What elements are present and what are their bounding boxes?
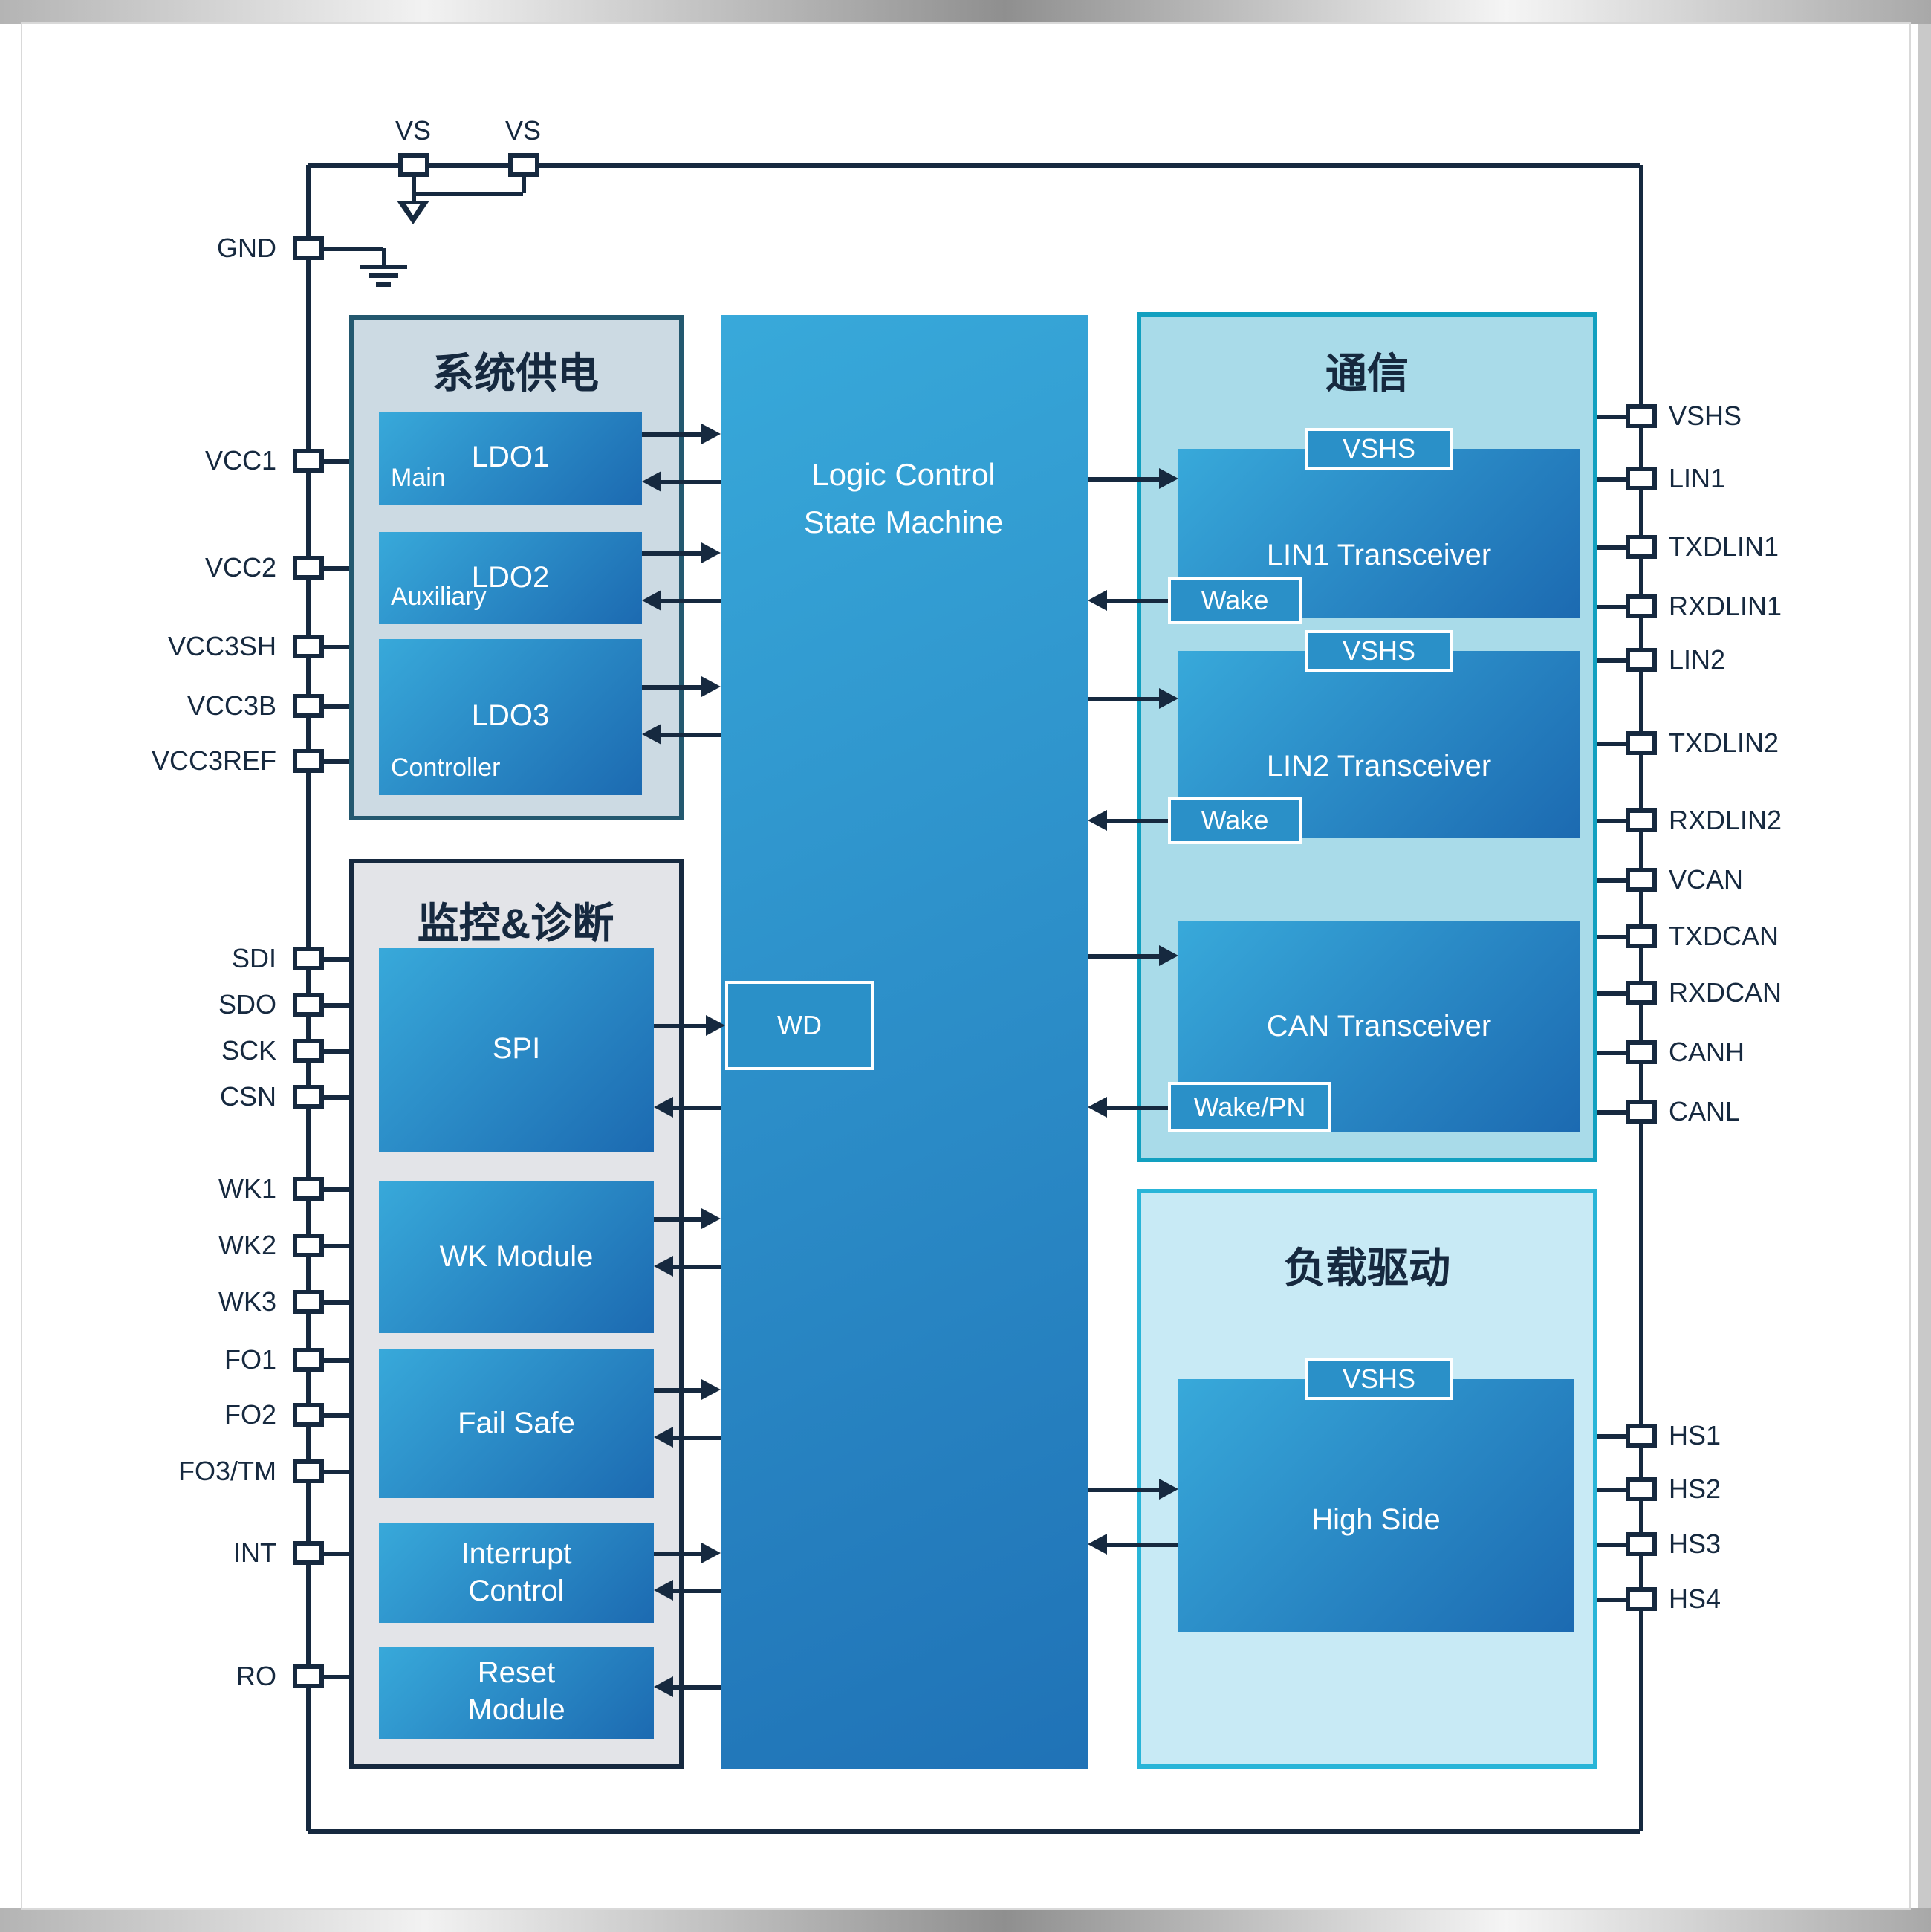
module-spi: SPI — [379, 948, 654, 1152]
arrow-interrupt-out-head — [701, 1543, 721, 1563]
pin-fo3-tm — [292, 1459, 323, 1483]
arrow-ldo2-in-head — [642, 590, 661, 611]
pin-label-gnd: GND — [217, 235, 276, 262]
module-high-side: High Side — [1178, 1379, 1574, 1632]
pin-rxdlin1 — [1625, 594, 1656, 618]
arrow-spi-in-head — [654, 1097, 673, 1118]
arrow-interrupt-in-head — [654, 1580, 673, 1601]
pin-label-canh: CANH — [1669, 1039, 1745, 1066]
pin-wk1 — [292, 1177, 323, 1201]
pin-vcc1 — [292, 449, 323, 473]
pin-vs-1 — [397, 153, 429, 177]
pin-canh — [1625, 1040, 1656, 1064]
badge-lin1-wake: Wake — [1168, 577, 1302, 624]
arrow-reset-in-shaft — [670, 1685, 721, 1689]
pin-label-wk2: WK2 — [218, 1232, 276, 1259]
pin-label-lin1: LIN1 — [1669, 465, 1725, 492]
pin-label-fo1: FO1 — [224, 1346, 276, 1373]
pin-hs3 — [1625, 1532, 1656, 1556]
arrow-can-wake-out-shaft — [1104, 1105, 1168, 1109]
pin-label-vshs: VSHS — [1669, 403, 1742, 429]
pin-label-wk3: WK3 — [218, 1288, 276, 1315]
badge-can-wake-pn: Wake/PN — [1168, 1082, 1331, 1132]
pin-label-fo3-tm: FO3/TM — [178, 1458, 276, 1485]
pin-ro — [292, 1664, 323, 1688]
arrow-spi-in-shaft — [670, 1105, 721, 1109]
arrow-lin2-wake-out-head — [1088, 810, 1107, 831]
pin-wk3 — [292, 1290, 323, 1314]
module-interrupt: Interrupt Control — [379, 1523, 654, 1623]
pin-label-vcc1: VCC1 — [205, 447, 276, 474]
pin-hs2 — [1625, 1477, 1656, 1501]
arrow-ldo2-out-head — [701, 542, 721, 563]
pin-label-vcc3sh: VCC3SH — [168, 633, 276, 660]
gnd-wire-v — [381, 248, 386, 265]
section-title-load: 负载驱动 — [1284, 1236, 1450, 1296]
arrow-lin1-in-shaft — [1088, 476, 1162, 481]
pin-label-vcc3b: VCC3B — [187, 693, 276, 719]
pin-label-sdi: SDI — [232, 945, 276, 972]
pin-wk2 — [292, 1234, 323, 1257]
pin-hs4 — [1625, 1587, 1656, 1611]
arrow-lin2-in-shaft — [1088, 696, 1162, 701]
arrow-ldo2-in-shaft — [658, 598, 721, 603]
pin-rxdcan — [1625, 981, 1656, 1005]
arrow-wk-in-head — [654, 1256, 673, 1277]
pin-label-sdo: SDO — [218, 991, 276, 1018]
vs-wire-down-1 — [411, 177, 415, 204]
pin-canl — [1625, 1100, 1656, 1124]
vs-wire-join — [413, 191, 523, 195]
arrow-lin1-in-head — [1159, 468, 1178, 489]
chip-block-diagram: VSVSGNDVCC1VCC2VCC3SHVCC3BVCC3REFSDISDOS… — [0, 0, 1931, 1932]
pin-vshs — [1625, 404, 1656, 428]
pin-label-vcc3ref: VCC3REF — [152, 748, 276, 774]
pin-fo1 — [292, 1348, 323, 1372]
pin-label-vs-2: VS — [505, 117, 541, 144]
pin-label-rxdcan: RXDCAN — [1669, 979, 1782, 1006]
section-title-power: 系统供电 — [432, 342, 599, 401]
pin-label-txdlin1: TXDLIN1 — [1669, 534, 1779, 560]
pin-label-int: INT — [233, 1540, 276, 1566]
pin-vcc3ref — [292, 749, 323, 773]
pin-rxdlin2 — [1625, 808, 1656, 832]
gnd-bar-1 — [360, 264, 407, 268]
arrow-ldo1-out-shaft — [642, 432, 704, 436]
arrow-lin1-wake-out-shaft — [1104, 598, 1168, 603]
arrow-interrupt-out-shaft — [654, 1551, 704, 1555]
pin-label-wk1: WK1 — [218, 1176, 276, 1202]
badge-highside-vshs: VSHS — [1305, 1358, 1453, 1400]
badge-lin2-wake: Wake — [1168, 797, 1302, 844]
pin-label-ro: RO — [236, 1663, 276, 1690]
pin-label-canl: CANL — [1669, 1098, 1740, 1125]
module-ldo1-role: Main — [391, 464, 446, 493]
pin-vs-2 — [507, 153, 539, 177]
module-reset: Reset Module — [379, 1647, 654, 1739]
arrow-reset-in-head — [654, 1676, 673, 1697]
arrow-ldo3-in-shaft — [658, 732, 721, 736]
arrow-highside-out-head — [1088, 1534, 1107, 1555]
badge-lin2-vshs: VSHS — [1305, 630, 1453, 672]
arrow-wk-out-shaft — [654, 1216, 704, 1221]
arrow-highside-in-head — [1159, 1479, 1178, 1500]
module-logic-control-label: Logic Control State Machine — [804, 453, 1004, 546]
arrow-interrupt-in-shaft — [670, 1588, 721, 1592]
pin-label-csn: CSN — [220, 1083, 276, 1110]
arrow-highside-in-shaft — [1088, 1487, 1162, 1491]
pin-csn — [292, 1085, 323, 1109]
pin-label-vcan: VCAN — [1669, 866, 1743, 893]
pin-label-hs2: HS2 — [1669, 1476, 1721, 1503]
arrow-failsafe-out-head — [701, 1379, 721, 1400]
pin-txdcan — [1625, 924, 1656, 948]
arrow-lin1-wake-out-head — [1088, 590, 1107, 611]
gnd-wire-h — [322, 246, 383, 250]
arrow-failsafe-in-shaft — [670, 1435, 721, 1439]
module-ldo3-role: Controller — [391, 753, 500, 783]
module-failsafe: Fail Safe — [379, 1349, 654, 1498]
pin-label-hs4: HS4 — [1669, 1586, 1721, 1612]
module-ldo2-role: Auxiliary — [391, 583, 487, 612]
gnd-bar-3 — [376, 282, 391, 286]
arrow-ldo3-out-head — [701, 676, 721, 697]
pin-vcc3sh — [292, 635, 323, 658]
pin-label-vs-1: VS — [395, 117, 431, 144]
section-title-communication: 通信 — [1325, 342, 1409, 401]
pin-label-hs1: HS1 — [1669, 1422, 1721, 1449]
pin-label-txdcan: TXDCAN — [1669, 923, 1779, 950]
pin-vcc3b — [292, 694, 323, 718]
pin-txdlin1 — [1625, 535, 1656, 559]
arrow-ldo2-out-shaft — [642, 551, 704, 555]
section-title-monitor: 监控&诊断 — [418, 892, 614, 951]
chip-border-bottom — [308, 1829, 1640, 1833]
window-chrome-top — [0, 0, 1931, 24]
arrow-can-in-head — [1159, 945, 1178, 966]
pin-gnd — [292, 236, 323, 260]
module-wk: WK Module — [379, 1181, 654, 1333]
pin-lin2 — [1625, 648, 1656, 672]
pin-sck — [292, 1039, 323, 1063]
arrow-spi-to-wd-head — [706, 1015, 725, 1036]
pin-label-rxdlin2: RXDLIN2 — [1669, 807, 1782, 834]
arrow-failsafe-in-head — [654, 1427, 673, 1448]
supply-arrow-icon-inner — [406, 204, 421, 215]
pin-sdo — [292, 993, 323, 1017]
arrow-ldo1-in-shaft — [658, 479, 721, 484]
window-edge-right — [1918, 24, 1931, 1908]
gnd-bar-2 — [369, 273, 398, 277]
badge-lin1-vshs: VSHS — [1305, 428, 1453, 470]
arrow-ldo3-in-head — [642, 724, 661, 745]
arrow-spi-to-wd-shaft — [654, 1023, 709, 1028]
arrow-highside-out-shaft — [1104, 1542, 1178, 1546]
arrow-wk-in-shaft — [670, 1264, 721, 1268]
pin-vcan — [1625, 868, 1656, 892]
arrow-can-wake-out-head — [1088, 1097, 1107, 1118]
arrow-failsafe-out-shaft — [654, 1387, 704, 1392]
pin-label-txdlin2: TXDLIN2 — [1669, 730, 1779, 756]
pin-label-hs3: HS3 — [1669, 1531, 1721, 1557]
arrow-lin2-in-head — [1159, 688, 1178, 709]
arrow-can-in-shaft — [1088, 953, 1162, 958]
arrow-wk-out-head — [701, 1208, 721, 1229]
pin-sdi — [292, 947, 323, 970]
window-chrome-bottom — [0, 1908, 1931, 1932]
arrow-lin2-wake-out-shaft — [1104, 818, 1168, 823]
arrow-ldo3-out-shaft — [642, 684, 704, 689]
pin-fo2 — [292, 1403, 323, 1427]
pin-label-lin2: LIN2 — [1669, 646, 1725, 673]
pin-label-vcc2: VCC2 — [205, 554, 276, 581]
pin-vcc2 — [292, 556, 323, 580]
pin-int — [292, 1541, 323, 1565]
pin-lin1 — [1625, 467, 1656, 490]
pin-label-sck: SCK — [221, 1037, 276, 1064]
pin-txdlin2 — [1625, 731, 1656, 755]
pin-label-fo2: FO2 — [224, 1401, 276, 1428]
pin-hs1 — [1625, 1424, 1656, 1448]
pin-label-rxdlin1: RXDLIN1 — [1669, 593, 1782, 620]
arrow-ldo1-out-head — [701, 424, 721, 444]
arrow-ldo1-in-head — [642, 471, 661, 492]
module-watchdog: WD — [725, 981, 874, 1070]
